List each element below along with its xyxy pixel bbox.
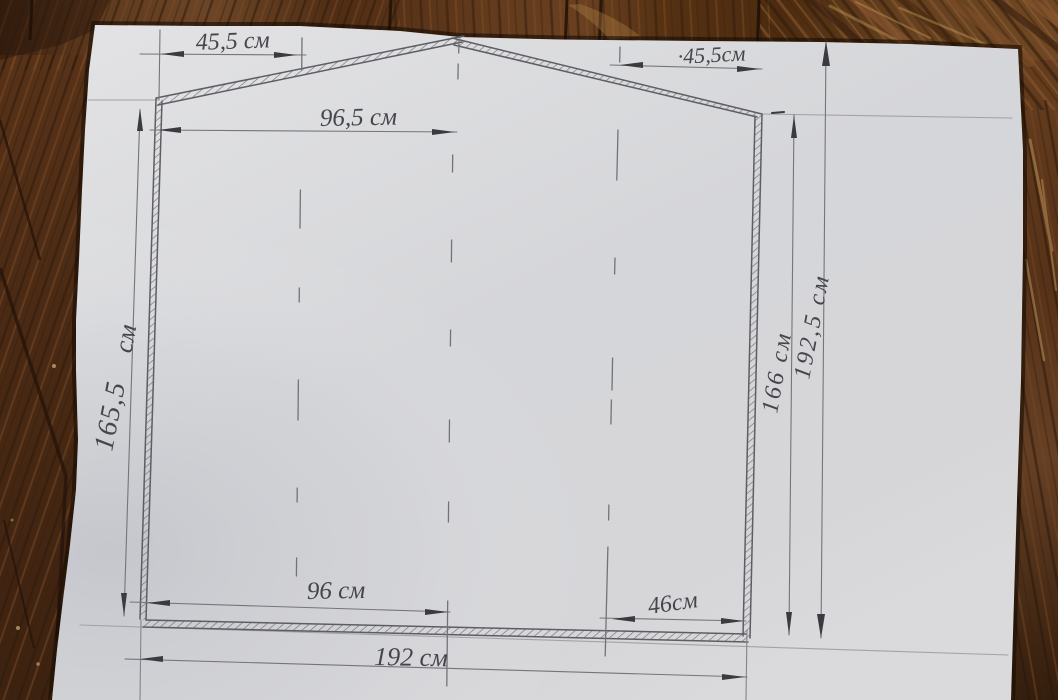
svg-text:·45,5см: ·45,5см bbox=[677, 40, 746, 69]
svg-text:96 см: 96 см bbox=[307, 577, 366, 605]
svg-text:см: см bbox=[109, 322, 143, 355]
svg-text:96,5 см: 96,5 см bbox=[320, 104, 398, 132]
svg-text:192 см: 192 см bbox=[374, 642, 448, 672]
svg-text:45,5 см: 45,5 см bbox=[195, 27, 270, 56]
